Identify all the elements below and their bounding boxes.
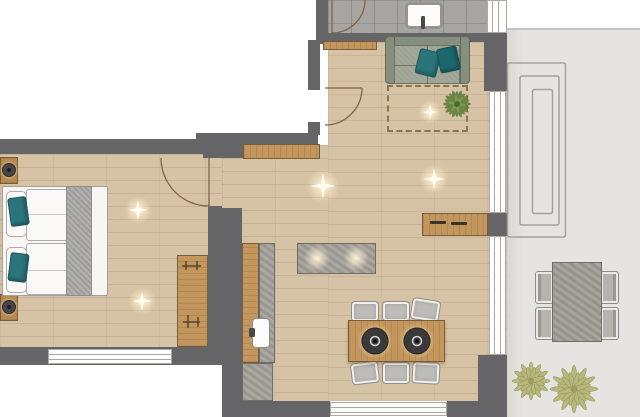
hall-bench (323, 41, 377, 50)
wall-pillar-topright (484, 33, 507, 91)
bed-accent-pillow-bottom (7, 252, 29, 283)
dining-chair-1 (352, 302, 378, 321)
wall-bottom-right (447, 401, 478, 417)
wall-kitchen-left (222, 208, 242, 417)
washbasin (405, 2, 443, 29)
wall-corner-bottomright (478, 355, 507, 417)
nightstand-top (0, 157, 18, 184)
dining-chair-4 (351, 361, 379, 384)
dining-chair-5 (383, 363, 409, 383)
window-right-upper (489, 91, 506, 213)
wall-bedroom-top (0, 139, 212, 154)
outdoor-table (552, 262, 602, 342)
bed-duvet-bottom (26, 243, 69, 295)
wardrobe (177, 255, 208, 347)
window-bath-right (487, 0, 507, 33)
kitchen-island (297, 243, 376, 274)
living-rug-outline (387, 85, 468, 132)
nightstand-bottom (0, 294, 18, 321)
kitchen-counter-lower (242, 363, 273, 401)
bed-accent-pillow-top (7, 196, 30, 227)
terrace-floor (507, 28, 640, 417)
bedroom-doorway-floor (205, 154, 222, 208)
wall-pillar-right (487, 213, 507, 236)
window-right-lower (489, 236, 506, 355)
dining-chair-2 (383, 302, 409, 321)
dining-chair-3 (411, 298, 441, 322)
kitchen-sink (252, 318, 270, 348)
outdoor-chair-4 (601, 308, 618, 339)
sideboard (422, 213, 488, 236)
wall-adjacent-room-right (308, 40, 320, 90)
window-bedroom (48, 349, 172, 364)
outdoor-chair-2 (536, 308, 553, 339)
dining-table (348, 320, 445, 362)
floor-plan (0, 0, 640, 417)
bed-runner (66, 186, 92, 296)
dining-chair-6 (412, 362, 439, 383)
wall-bedroom-right (208, 206, 222, 347)
outdoor-chair-1 (536, 272, 553, 303)
wall-adjacent-room-right-stub (308, 122, 320, 135)
adjacent-room (196, 44, 308, 133)
window-bottom (330, 402, 447, 416)
lowboard-shelf (243, 144, 320, 159)
outdoor-chair-3 (601, 272, 618, 303)
bed-duvet-top (26, 189, 69, 241)
sofa-arm-right (460, 36, 470, 84)
